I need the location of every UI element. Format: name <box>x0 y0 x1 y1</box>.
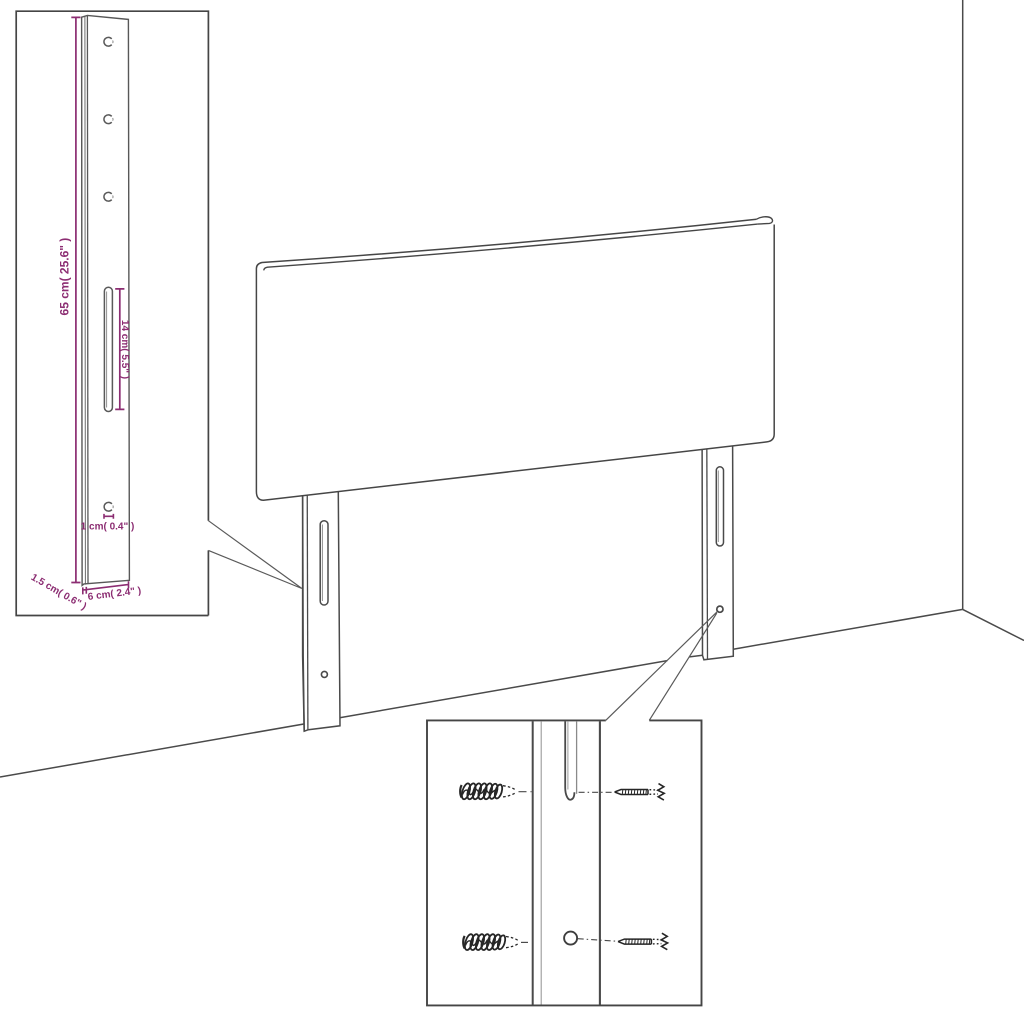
svg-text:65 cm( 25.6" ): 65 cm( 25.6" ) <box>57 238 71 316</box>
svg-text:14 cm( 5.5" ): 14 cm( 5.5" ) <box>119 320 130 379</box>
svg-text:1 cm( 0.4" ): 1 cm( 0.4" ) <box>81 521 135 532</box>
